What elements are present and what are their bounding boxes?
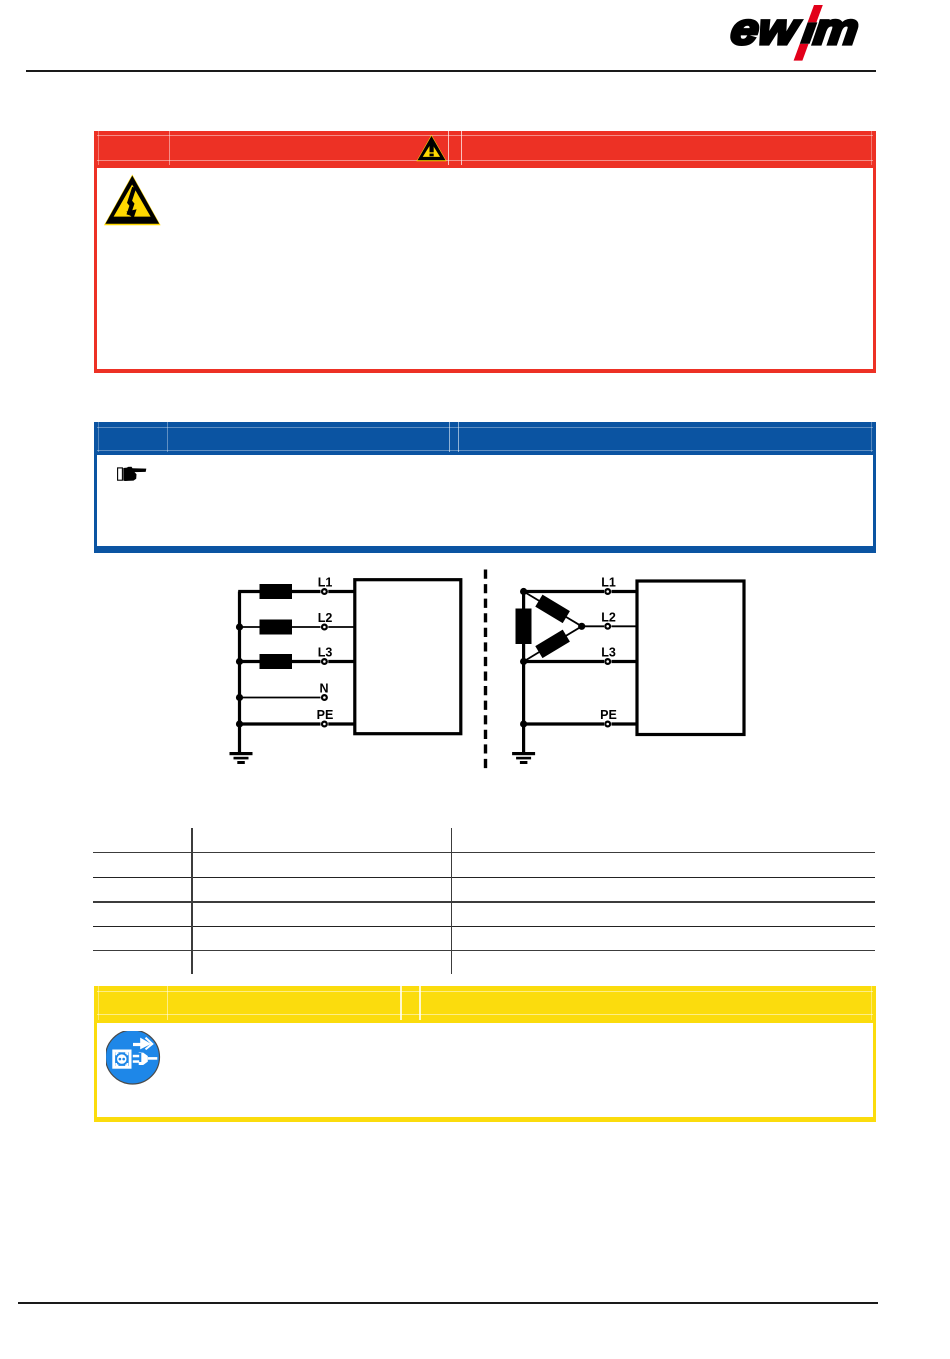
svg-text:N: N xyxy=(319,682,328,696)
svg-text:m: m xyxy=(811,5,861,54)
svg-text:L3: L3 xyxy=(601,646,616,660)
svg-text:PE: PE xyxy=(317,708,334,722)
svg-text:L2: L2 xyxy=(318,611,333,625)
svg-text:ew: ew xyxy=(728,5,803,54)
svg-text:L1: L1 xyxy=(318,576,333,590)
svg-text:L1: L1 xyxy=(601,576,616,590)
svg-text:PE: PE xyxy=(600,708,617,722)
svg-text:L3: L3 xyxy=(318,646,333,660)
svg-text:L2: L2 xyxy=(601,610,616,624)
